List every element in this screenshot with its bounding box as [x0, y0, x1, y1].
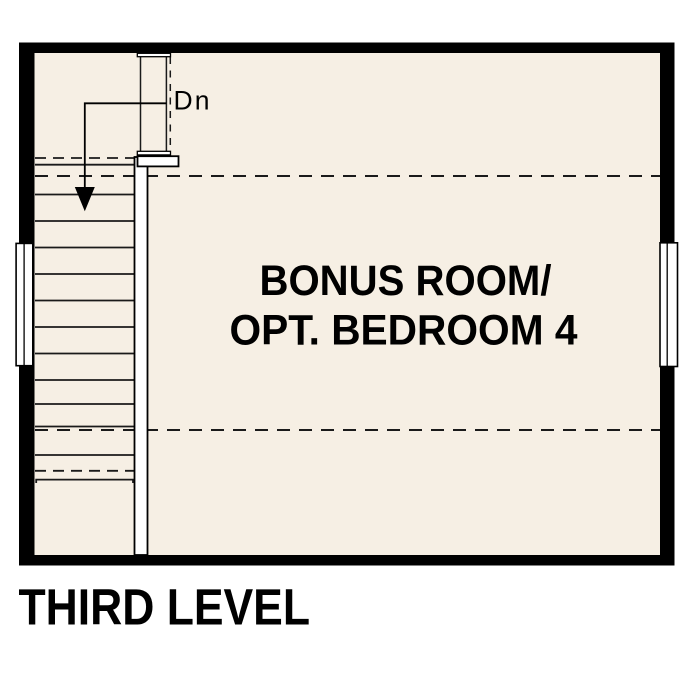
svg-text:OPT. BEDROOM 4: OPT. BEDROOM 4: [230, 307, 578, 354]
svg-text:THIRD LEVEL: THIRD LEVEL: [19, 579, 311, 636]
svg-text:BONUS ROOM/: BONUS ROOM/: [260, 258, 552, 305]
svg-text:Dn: Dn: [174, 86, 210, 116]
